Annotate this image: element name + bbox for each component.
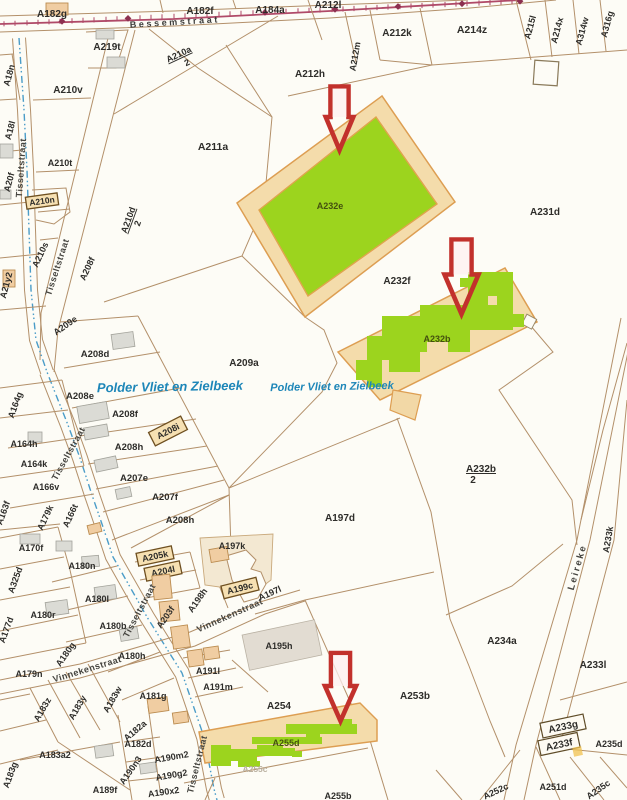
svg-text:A232b: A232b — [423, 334, 451, 344]
svg-text:A180h: A180h — [118, 651, 145, 661]
svg-text:A164k: A164k — [21, 459, 49, 469]
svg-text:A211a: A211a — [198, 141, 229, 153]
svg-text:A182d: A182d — [124, 739, 151, 749]
svg-text:A212h: A212h — [295, 69, 325, 80]
svg-text:A182f: A182f — [186, 6, 214, 17]
svg-text:A208f: A208f — [112, 409, 139, 420]
svg-text:A207f: A207f — [152, 492, 179, 503]
svg-text:A210t: A210t — [48, 158, 73, 168]
svg-text:A208h: A208h — [115, 442, 144, 453]
svg-text:A180l: A180l — [85, 594, 109, 604]
svg-text:A253b: A253b — [400, 691, 430, 702]
svg-text:Polder Vliet en Zielbeek: Polder Vliet en Zielbeek — [270, 380, 395, 394]
svg-text:A180n: A180n — [68, 561, 95, 571]
svg-text:A182g: A182g — [37, 9, 67, 20]
svg-text:A197d: A197d — [325, 513, 355, 524]
svg-text:A179n: A179n — [15, 669, 42, 679]
svg-text:A208d: A208d — [81, 349, 110, 360]
svg-text:A233l: A233l — [580, 660, 607, 671]
svg-text:A219t: A219t — [93, 42, 121, 53]
svg-text:A191m: A191m — [203, 682, 233, 692]
svg-text:A170f: A170f — [19, 543, 45, 553]
svg-text:A208h: A208h — [166, 515, 195, 526]
svg-text:A181g: A181g — [139, 691, 166, 701]
svg-text:A166v: A166v — [33, 482, 60, 492]
svg-text:A191l: A191l — [196, 666, 220, 676]
svg-text:A231d: A231d — [530, 207, 560, 218]
svg-text:A232f: A232f — [383, 276, 411, 287]
svg-text:2: 2 — [470, 475, 476, 486]
svg-text:A251d: A251d — [539, 782, 566, 792]
svg-text:A183a2: A183a2 — [39, 750, 71, 760]
svg-text:A197k: A197k — [219, 541, 247, 551]
svg-text:A210v: A210v — [53, 85, 83, 96]
svg-text:A212l: A212l — [315, 0, 342, 11]
svg-text:A184a: A184a — [255, 5, 285, 16]
svg-text:A164h: A164h — [10, 439, 37, 449]
svg-text:A207e: A207e — [120, 473, 148, 484]
svg-text:A232e: A232e — [317, 201, 344, 211]
svg-text:A189f: A189f — [93, 785, 119, 795]
svg-text:A232b: A232b — [466, 464, 496, 475]
svg-text:A180r: A180r — [30, 610, 56, 620]
svg-text:A235d: A235d — [595, 739, 622, 749]
svg-text:A212k: A212k — [382, 28, 412, 39]
svg-text:A195h: A195h — [265, 641, 292, 651]
svg-text:A208e: A208e — [66, 391, 94, 402]
svg-text:A180b: A180b — [99, 621, 127, 631]
svg-text:A209a: A209a — [229, 358, 259, 369]
svg-text:A214z: A214z — [457, 24, 487, 36]
svg-text:A254: A254 — [267, 701, 291, 712]
svg-text:A255c: A255c — [242, 764, 267, 774]
svg-text:Polder Vliet en Zielbeek: Polder Vliet en Zielbeek — [97, 378, 244, 396]
svg-text:A255b: A255b — [324, 791, 352, 800]
svg-text:A234a: A234a — [487, 636, 517, 647]
svg-text:A255d: A255d — [272, 738, 299, 748]
